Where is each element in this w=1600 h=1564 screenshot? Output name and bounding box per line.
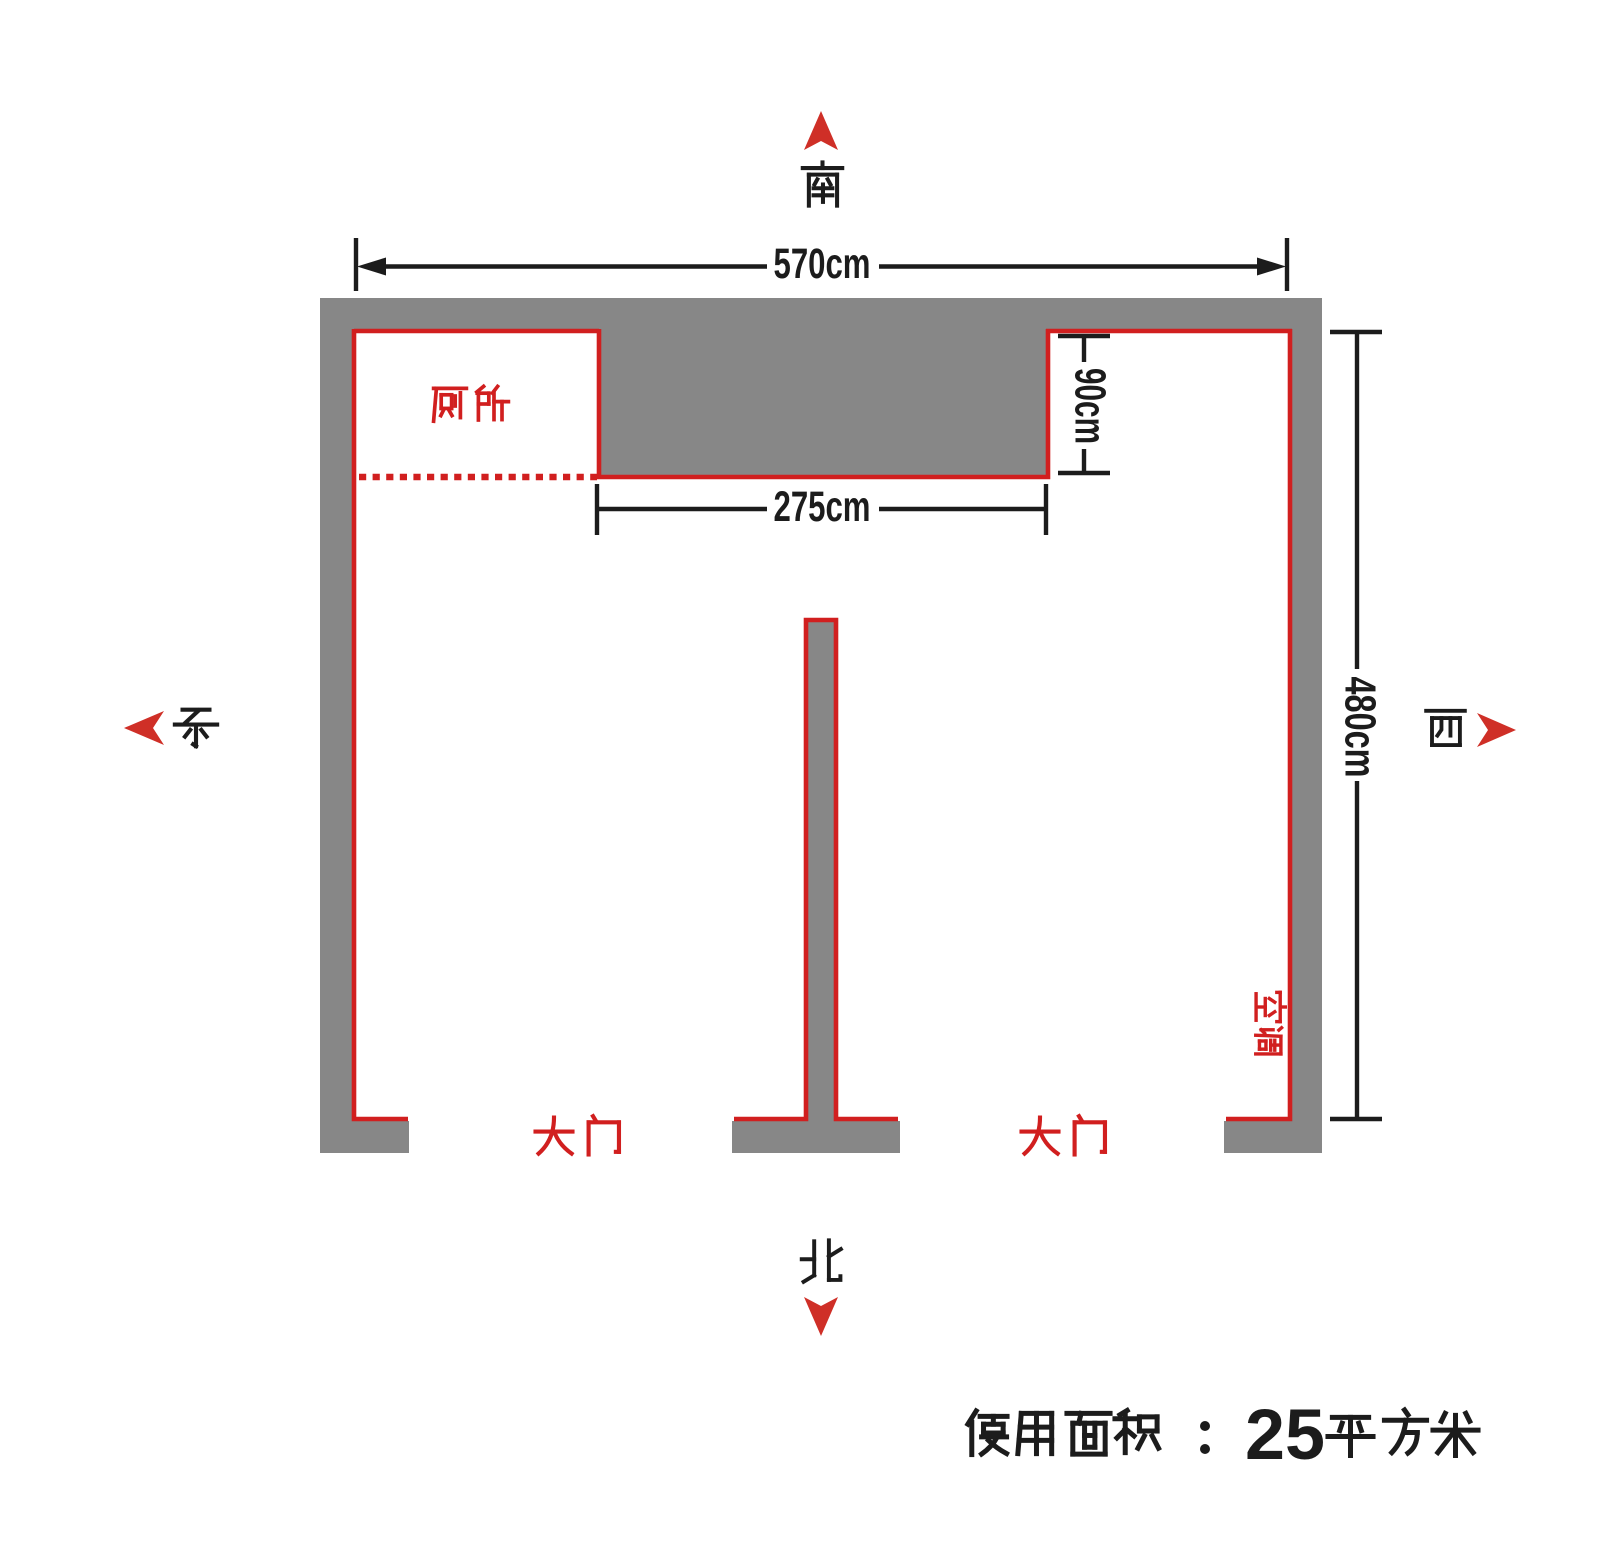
svg-text:25: 25 — [1245, 1396, 1325, 1475]
svg-text:90cm: 90cm — [1066, 368, 1115, 444]
svg-text:480cm: 480cm — [1336, 677, 1385, 778]
svg-text:275cm: 275cm — [774, 483, 871, 531]
svg-text:570cm: 570cm — [774, 240, 871, 288]
